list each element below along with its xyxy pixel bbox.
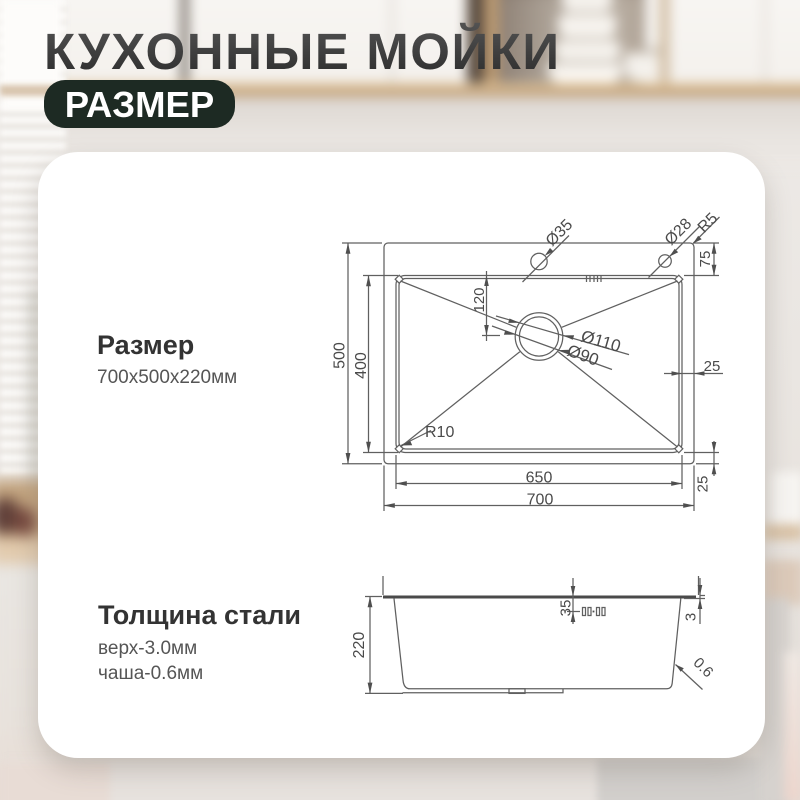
svg-text:25: 25 [704, 358, 721, 375]
svg-text:3: 3 [683, 613, 700, 621]
svg-text:R5: R5 [695, 210, 722, 237]
svg-text:120: 120 [471, 287, 488, 312]
svg-text:700: 700 [527, 492, 554, 509]
svg-text:0.6: 0.6 [690, 654, 717, 681]
svg-text:25: 25 [695, 476, 712, 493]
svg-text:220: 220 [351, 632, 368, 659]
svg-text:35: 35 [558, 600, 575, 617]
svg-text:Ø28: Ø28 [662, 215, 695, 248]
svg-text:650: 650 [526, 470, 553, 487]
svg-text:500: 500 [332, 342, 349, 369]
svg-text:Ø35: Ø35 [543, 216, 576, 249]
svg-text:R10: R10 [425, 424, 454, 441]
svg-text:75: 75 [697, 251, 714, 268]
svg-text:400: 400 [353, 352, 370, 379]
